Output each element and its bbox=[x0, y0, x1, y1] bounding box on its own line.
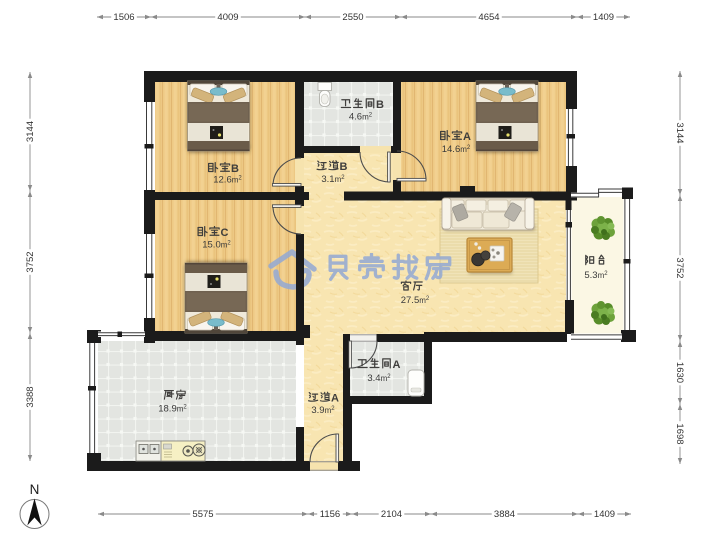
svg-text:1698: 1698 bbox=[674, 423, 685, 444]
svg-text:1156: 1156 bbox=[320, 509, 340, 520]
svg-text:1630: 1630 bbox=[674, 362, 685, 383]
svg-text:27.5m2: 27.5m2 bbox=[401, 295, 430, 306]
svg-text:A: A bbox=[331, 392, 339, 404]
svg-text:3752: 3752 bbox=[25, 251, 36, 272]
svg-text:5575: 5575 bbox=[192, 509, 213, 520]
svg-text:3388: 3388 bbox=[25, 386, 36, 407]
svg-text:B: B bbox=[231, 163, 239, 175]
svg-text:4654: 4654 bbox=[478, 12, 499, 23]
svg-text:3144: 3144 bbox=[674, 122, 685, 143]
svg-text:3144: 3144 bbox=[25, 121, 36, 142]
svg-text:A: A bbox=[463, 131, 471, 143]
svg-text:1506: 1506 bbox=[113, 12, 134, 23]
svg-text:14.6m2: 14.6m2 bbox=[442, 144, 471, 155]
svg-text:C: C bbox=[221, 227, 229, 239]
svg-text:1409: 1409 bbox=[593, 12, 614, 23]
svg-text:2550: 2550 bbox=[342, 12, 363, 23]
svg-text:B: B bbox=[376, 99, 384, 111]
svg-text:4009: 4009 bbox=[217, 12, 238, 23]
svg-text:N: N bbox=[30, 482, 40, 497]
svg-text:B: B bbox=[340, 161, 348, 173]
svg-text:3884: 3884 bbox=[494, 509, 515, 520]
svg-text:12.6m2: 12.6m2 bbox=[213, 175, 242, 186]
svg-text:3752: 3752 bbox=[674, 257, 685, 278]
svg-text:15.0m2: 15.0m2 bbox=[202, 240, 231, 251]
svg-text:1409: 1409 bbox=[594, 509, 615, 520]
svg-text:2104: 2104 bbox=[381, 509, 402, 520]
svg-text:A: A bbox=[393, 359, 401, 371]
svg-text:18.9m2: 18.9m2 bbox=[158, 404, 187, 415]
